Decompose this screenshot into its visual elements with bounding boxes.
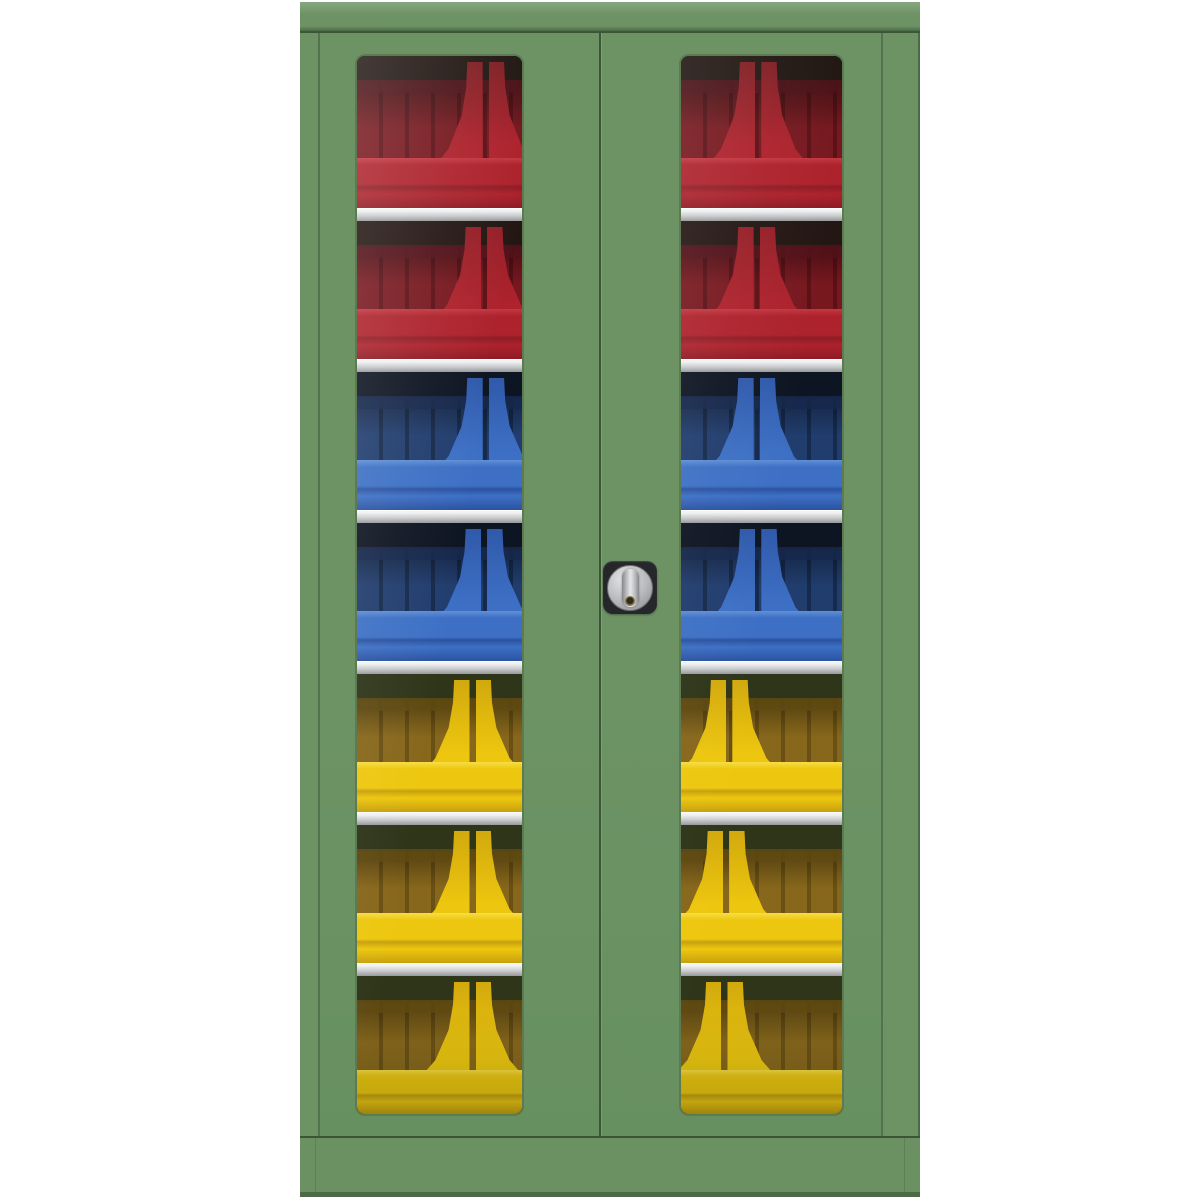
bin-row-yellow bbox=[681, 976, 842, 1114]
bin-row-blue bbox=[681, 372, 842, 523]
shelf-edge bbox=[357, 963, 522, 976]
product-photo bbox=[0, 0, 1200, 1200]
shelf-edge bbox=[681, 963, 842, 976]
cabinet-side-panel-right bbox=[881, 33, 920, 1136]
bin-row-blue bbox=[357, 372, 522, 523]
shelf-edge bbox=[357, 359, 522, 372]
bin-front-lip bbox=[357, 158, 522, 208]
bin-row-blue bbox=[681, 523, 842, 674]
cabinet-door-left bbox=[320, 33, 599, 1136]
shelf-edge bbox=[681, 359, 842, 372]
bin-front-lip bbox=[357, 611, 522, 661]
lock-plate bbox=[603, 561, 657, 614]
vision-window-right bbox=[681, 56, 842, 1114]
plinth-seam bbox=[904, 1138, 905, 1192]
bin-front-lip bbox=[681, 158, 842, 208]
cabinet-plinth bbox=[300, 1136, 920, 1197]
cabinet-door-right bbox=[601, 33, 881, 1136]
bin-front-lip bbox=[681, 913, 842, 963]
shelf-edge bbox=[357, 812, 522, 825]
bin-front-lip bbox=[681, 460, 842, 510]
lock-knob bbox=[607, 565, 653, 611]
bin-row-yellow bbox=[357, 674, 522, 825]
shelf-edge bbox=[357, 661, 522, 674]
shelf-edge bbox=[681, 208, 842, 221]
bin-row-red bbox=[681, 56, 842, 221]
cabinet-top-cap bbox=[300, 2, 920, 33]
shelf-edge bbox=[357, 208, 522, 221]
cabinet-side-panel-left bbox=[300, 33, 320, 1136]
bin-rows-left bbox=[357, 56, 522, 1114]
shelf-edge bbox=[681, 812, 842, 825]
bin-row-yellow bbox=[357, 825, 522, 976]
bin-row-blue bbox=[357, 523, 522, 674]
bin-row-red bbox=[357, 221, 522, 372]
bin-front-lip bbox=[681, 762, 842, 812]
shelf-edge bbox=[357, 510, 522, 523]
shelf-edge bbox=[681, 661, 842, 674]
bin-row-yellow bbox=[681, 674, 842, 825]
bin-front-lip bbox=[681, 611, 842, 661]
bin-front-lip bbox=[357, 913, 522, 963]
bin-row-red bbox=[681, 221, 842, 372]
bin-front-lip bbox=[681, 1070, 842, 1114]
shelf-edge bbox=[681, 510, 842, 523]
vision-window-left bbox=[357, 56, 522, 1114]
door-gap-seam bbox=[599, 33, 601, 1136]
bin-row-yellow bbox=[357, 976, 522, 1114]
keyhole-icon bbox=[625, 596, 635, 606]
bin-row-yellow bbox=[681, 825, 842, 976]
bin-front-lip bbox=[357, 309, 522, 359]
bin-row-red bbox=[357, 56, 522, 221]
bin-front-lip bbox=[681, 309, 842, 359]
bin-front-lip bbox=[357, 1070, 522, 1114]
bin-rows-right bbox=[681, 56, 842, 1114]
bin-front-lip bbox=[357, 762, 522, 812]
bin-front-lip bbox=[357, 460, 522, 510]
plinth-seam bbox=[315, 1138, 316, 1192]
